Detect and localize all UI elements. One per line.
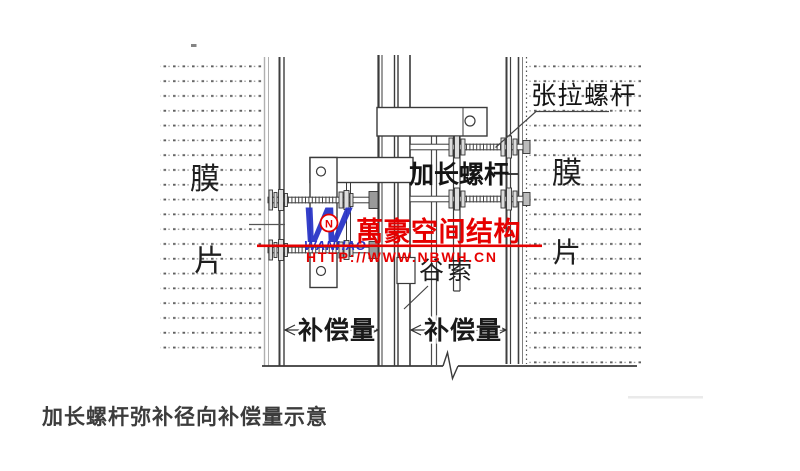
break-symbol — [443, 353, 458, 379]
figure-caption: 加长螺杆弥补径向补偿量示意 — [41, 405, 328, 429]
extended-bolt-label: 加长螺杆 — [408, 161, 509, 189]
extended-bolt-lower — [410, 188, 530, 210]
watermark-underline — [257, 245, 542, 248]
membrane-right-label-top: 膜 — [552, 157, 582, 190]
membrane-left-label-top: 膜 — [190, 163, 220, 196]
bolt-hole — [317, 267, 326, 276]
faint-artifact — [628, 396, 703, 399]
bolt-hole — [465, 116, 475, 126]
left-mullion-lines — [265, 57, 285, 366]
membrane-right-label-bottom: 片 — [553, 237, 581, 268]
membrane-structure-detail-drawing: 膜 片 膜 片 张拉螺杆 加长螺杆 谷索 补偿量 补偿量 加长螺杆弥补径向补偿量… — [0, 0, 800, 471]
valley-cable-leader-line — [404, 286, 428, 309]
compensation-label-right: 补偿量 — [424, 317, 502, 345]
membrane-left-label-bottom: 片 — [194, 245, 224, 278]
bolt-hole — [317, 167, 326, 176]
watermark: W N WANHAO 萬豪空间结构 HTTP://WWW.NBWH.CN — [257, 197, 542, 265]
watermark-logo-badge-letter: N — [325, 219, 333, 231]
tension-bolt-upper — [410, 136, 530, 158]
watermark-company-name: 萬豪空间结构 — [356, 216, 521, 247]
tension-bolt-label: 张拉螺杆 — [531, 82, 637, 110]
compensation-label-left: 补偿量 — [298, 317, 376, 345]
center-member-lines — [379, 55, 411, 366]
right-mullion-lines — [507, 57, 527, 364]
watermark-website: HTTP://WWW.NBWH.CN — [306, 249, 498, 265]
membrane-panel-left — [160, 58, 263, 360]
technical-drawing-canvas: 膜 片 膜 片 张拉螺杆 加长螺杆 谷索 补偿量 补偿量 加长螺杆弥补径向补偿量… — [0, 0, 800, 471]
membrane-texture-left — [160, 58, 263, 360]
stray-mark — [191, 44, 197, 47]
